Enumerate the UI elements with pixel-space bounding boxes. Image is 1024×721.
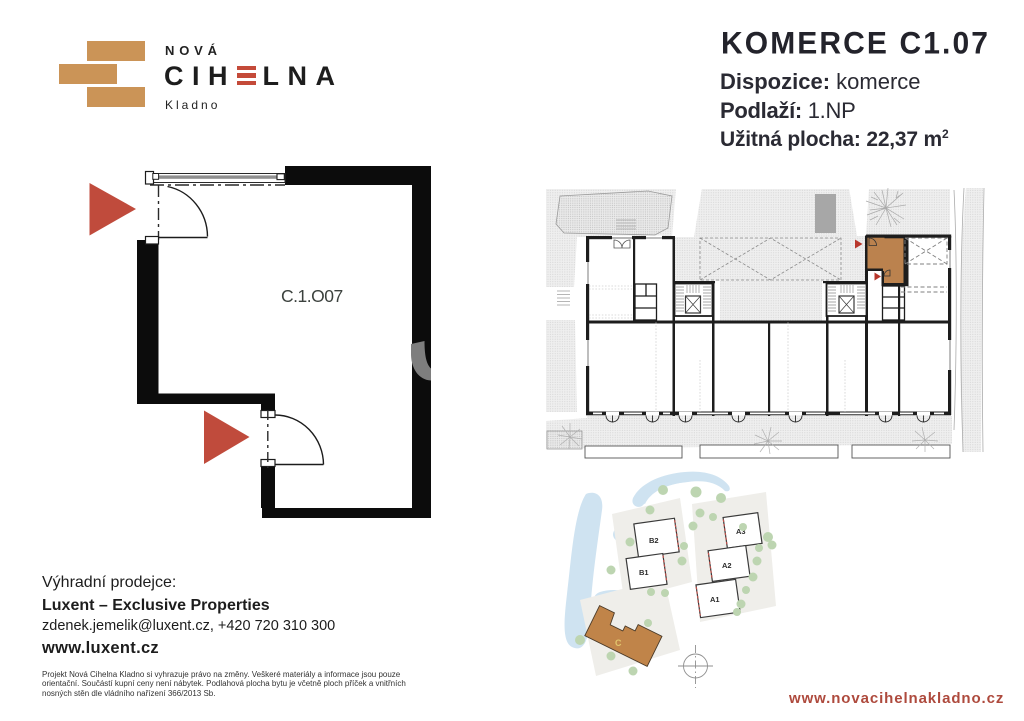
svg-text:B2: B2	[649, 536, 659, 545]
svg-text:A1: A1	[710, 595, 720, 604]
svg-text:C: C	[615, 638, 622, 648]
svg-text:A2: A2	[722, 561, 732, 570]
svg-text:B1: B1	[639, 568, 649, 577]
